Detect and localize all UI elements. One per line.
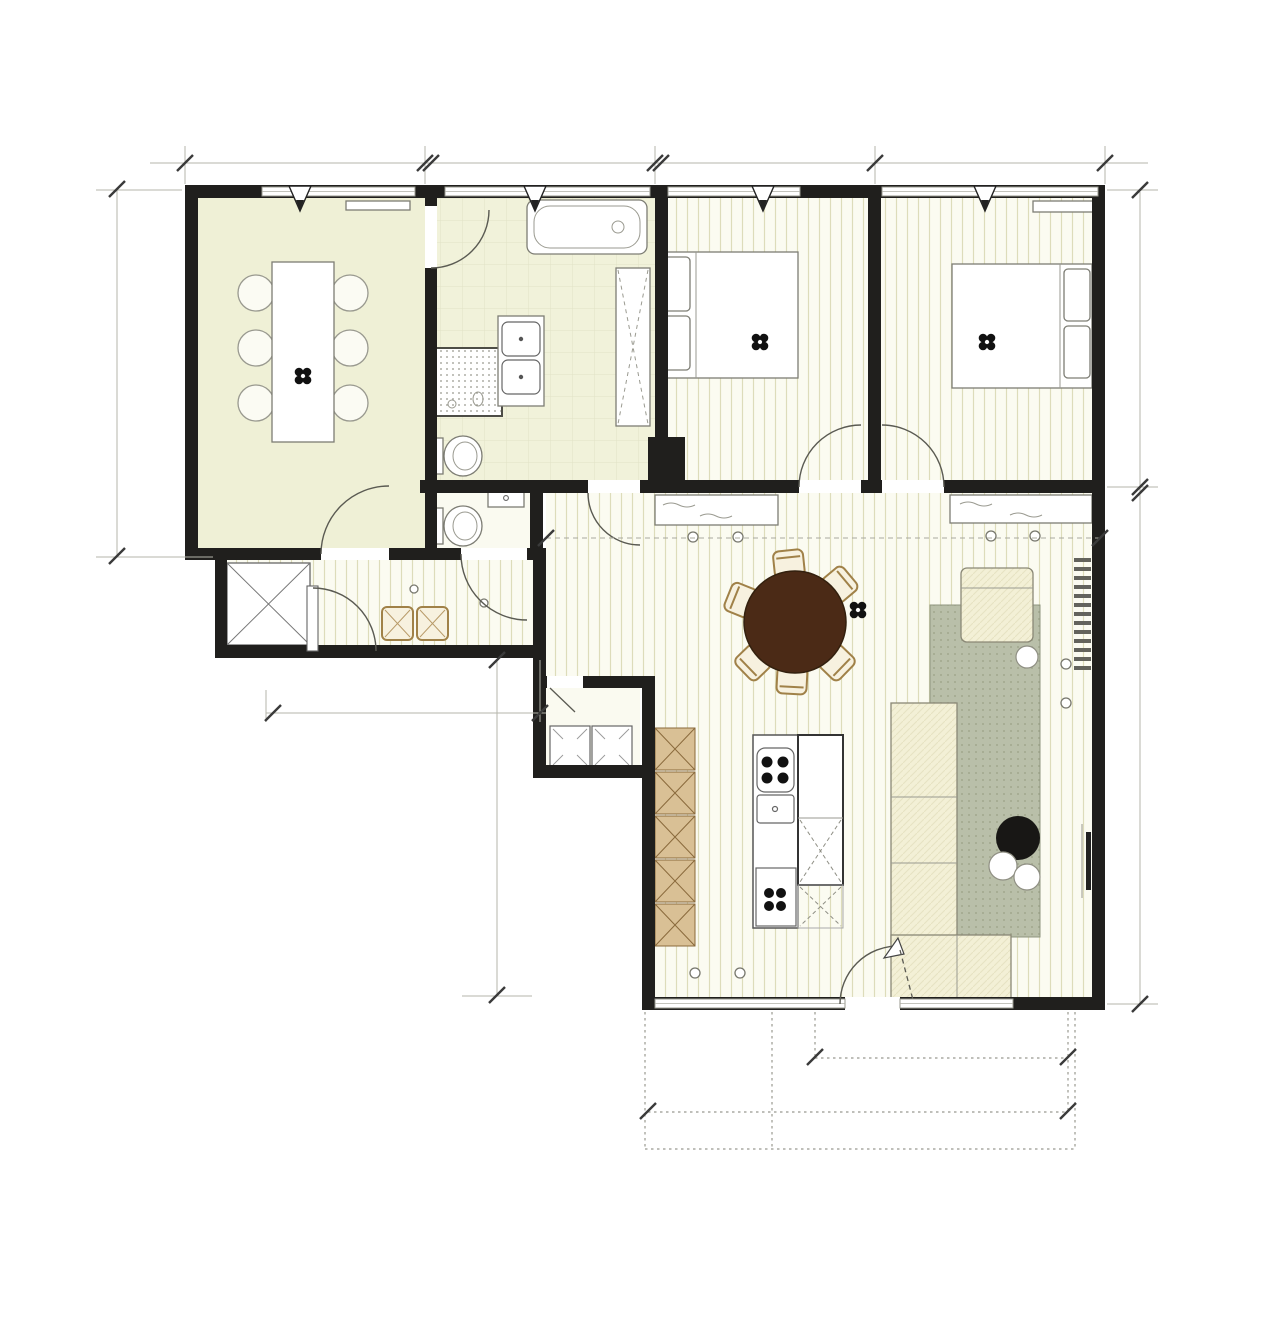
pouf xyxy=(1014,864,1040,890)
floor-plan-drawing xyxy=(0,0,1280,1328)
chair xyxy=(332,385,368,421)
bureau-table xyxy=(272,262,334,442)
pillow xyxy=(1064,326,1090,378)
bath-closet xyxy=(616,268,650,426)
chair xyxy=(238,330,274,366)
side-table-round xyxy=(1016,646,1038,668)
chair xyxy=(332,330,368,366)
shelf xyxy=(1033,201,1093,212)
sideboard xyxy=(655,495,778,525)
toilet xyxy=(430,506,482,546)
tv-screen xyxy=(1086,832,1091,890)
armchair xyxy=(961,568,1033,642)
chair xyxy=(332,275,368,311)
hand-basin xyxy=(488,491,524,507)
toilet xyxy=(430,436,482,476)
chair xyxy=(238,275,274,311)
kamer2-furniture xyxy=(660,252,798,378)
pillow xyxy=(1064,269,1090,321)
terrace xyxy=(645,1012,1075,1149)
kitchen-sink xyxy=(757,795,794,823)
tall-cabinet xyxy=(798,735,843,885)
bathtub xyxy=(527,200,647,254)
sideboard xyxy=(950,495,1092,523)
chair xyxy=(238,385,274,421)
dining-table xyxy=(744,571,846,673)
pouf xyxy=(989,852,1017,880)
kitchen-cabinets xyxy=(655,728,695,946)
shower xyxy=(428,348,502,416)
floor-corridor xyxy=(546,493,642,676)
cv-closet xyxy=(227,563,310,645)
floor-plan-page xyxy=(0,0,1280,1328)
oven xyxy=(756,868,796,926)
door-leaf xyxy=(307,586,318,651)
shelf xyxy=(346,201,410,210)
